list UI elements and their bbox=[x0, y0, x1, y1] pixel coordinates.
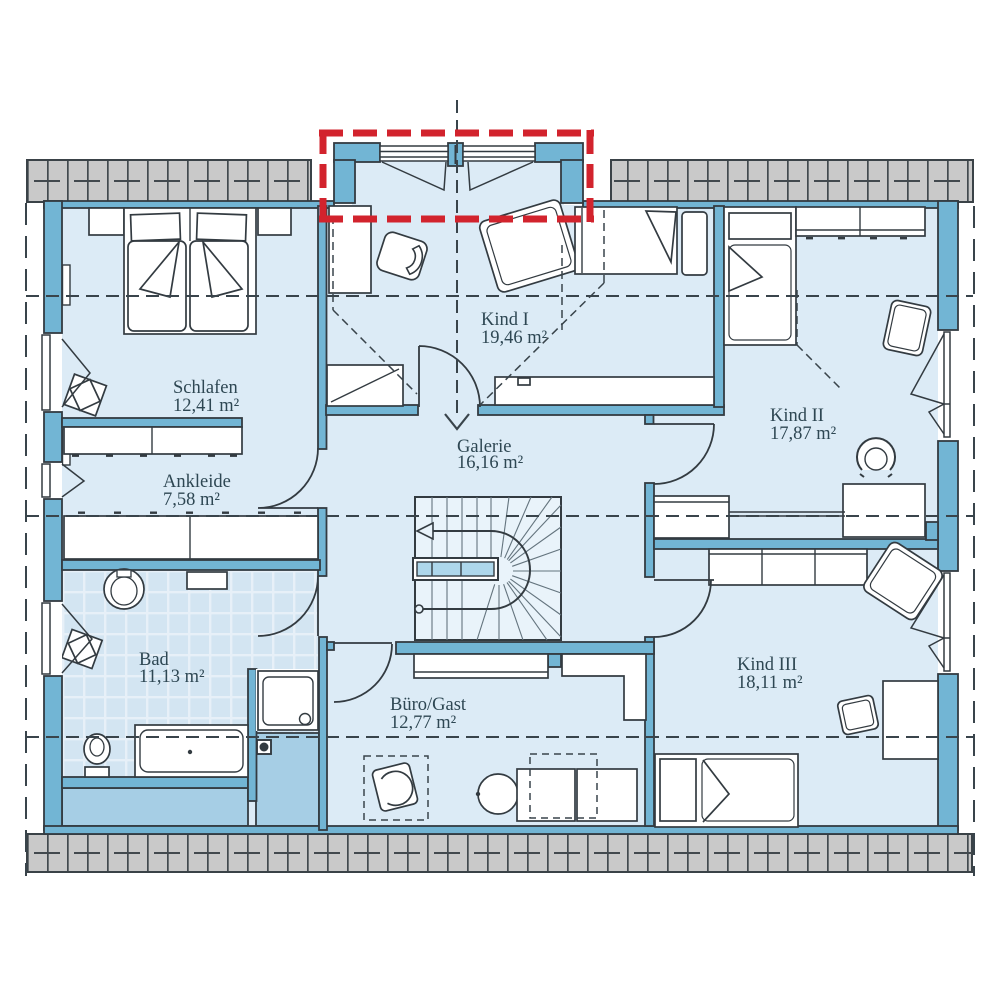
svg-text:7,58 m²: 7,58 m² bbox=[163, 490, 220, 510]
svg-text:17,87 m²: 17,87 m² bbox=[770, 424, 837, 444]
svg-text:11,13 m²: 11,13 m² bbox=[139, 667, 205, 687]
svg-text:Büro/Gast: Büro/Gast bbox=[390, 695, 467, 715]
svg-text:16,16 m²: 16,16 m² bbox=[457, 453, 524, 473]
svg-text:Ankleide: Ankleide bbox=[163, 472, 231, 492]
svg-text:18,11 m²: 18,11 m² bbox=[737, 673, 803, 693]
svg-text:Kind II: Kind II bbox=[770, 406, 824, 426]
svg-text:Kind III: Kind III bbox=[737, 655, 797, 675]
svg-text:Schlafen: Schlafen bbox=[173, 378, 238, 398]
svg-text:12,41 m²: 12,41 m² bbox=[173, 396, 240, 416]
svg-text:19,46 m²: 19,46 m² bbox=[481, 328, 548, 348]
svg-text:Kind I: Kind I bbox=[481, 310, 529, 330]
svg-text:12,77 m²: 12,77 m² bbox=[390, 713, 457, 733]
